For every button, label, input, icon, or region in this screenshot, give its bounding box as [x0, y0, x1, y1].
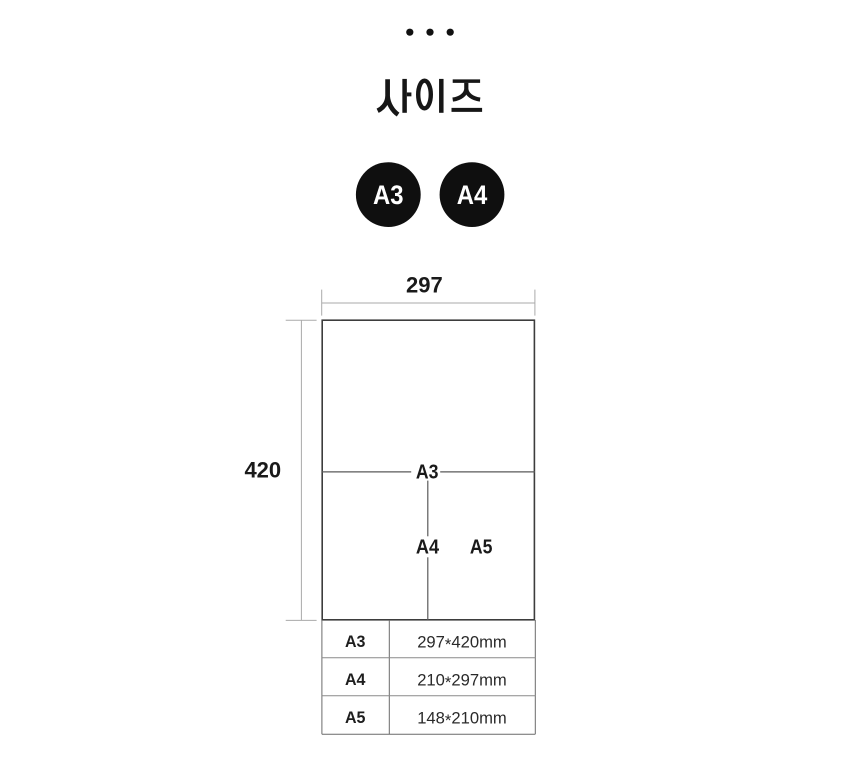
svg-text:A4: A4: [457, 180, 488, 210]
svg-text:A3: A3: [373, 180, 404, 210]
svg-text:A3: A3: [416, 461, 439, 483]
svg-text:297*420mm: 297*420mm: [417, 633, 507, 655]
svg-text:A4: A4: [416, 537, 440, 559]
svg-text:420: 420: [244, 457, 281, 482]
svg-text:A5: A5: [470, 537, 493, 559]
svg-text:148*210mm: 148*210mm: [417, 709, 507, 731]
svg-text:A4: A4: [345, 670, 366, 689]
svg-text:297: 297: [406, 273, 443, 298]
svg-text:210*297mm: 210*297mm: [417, 671, 507, 693]
svg-text:A5: A5: [345, 708, 366, 727]
svg-text:A3: A3: [345, 632, 366, 651]
